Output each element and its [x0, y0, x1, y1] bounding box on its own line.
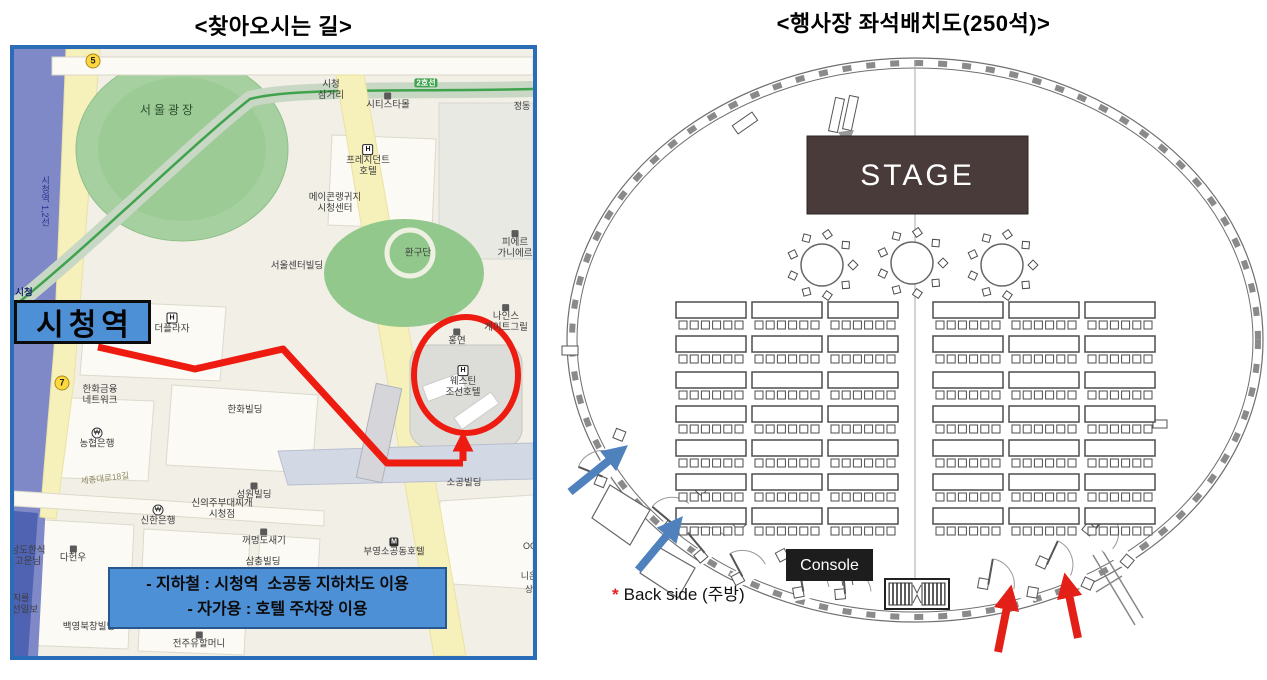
chair: [701, 355, 709, 363]
chair: [936, 355, 944, 363]
banquet-table-row: [1009, 474, 1079, 501]
chair: [947, 391, 955, 399]
chair: [724, 425, 732, 433]
chair: [766, 391, 774, 399]
wall-stub: [562, 346, 578, 355]
chair: [876, 493, 884, 501]
banquet-table-row: [828, 474, 898, 501]
info-line-car: - 자가용 : 호텔 주차장 이용: [187, 598, 367, 623]
map-exit-marker: 7: [55, 376, 70, 391]
chair: [811, 355, 819, 363]
chair: [932, 279, 940, 287]
chair: [831, 321, 839, 329]
bank-icon: ₩: [92, 428, 103, 439]
chair: [1068, 425, 1076, 433]
console-label: Console: [800, 557, 859, 574]
chair: [1099, 321, 1107, 329]
chair: [1046, 391, 1054, 399]
chair: [713, 391, 721, 399]
back-side-text: Back side (주방): [624, 585, 745, 604]
chair: [1144, 321, 1152, 329]
chair: [892, 232, 901, 241]
banquet-table-row: [1085, 336, 1155, 363]
chair: [853, 321, 861, 329]
chair: [724, 493, 732, 501]
chair: [735, 425, 743, 433]
chair: [811, 493, 819, 501]
chair: [876, 527, 884, 535]
chair: [958, 459, 966, 467]
chair: [981, 459, 989, 467]
chair: [713, 355, 721, 363]
banquet-table-row: [1085, 440, 1155, 467]
chair: [1133, 493, 1141, 501]
chair: [947, 355, 955, 363]
chair: [789, 321, 797, 329]
banquet-table-row: [828, 406, 898, 433]
chair: [800, 355, 808, 363]
chair: [913, 228, 923, 238]
chair: [1099, 425, 1107, 433]
building-icon: [453, 329, 460, 336]
chair: [947, 527, 955, 535]
chair: [1023, 391, 1031, 399]
banquet-table-row: [933, 372, 1003, 399]
chair: [936, 391, 944, 399]
chair: [755, 527, 763, 535]
banquet-table-row: [828, 440, 898, 467]
chair: [811, 459, 819, 467]
banquet-table-row: [752, 406, 822, 433]
building-icon: [69, 546, 76, 553]
chair: [842, 241, 850, 249]
chair: [865, 493, 873, 501]
chair: [1122, 321, 1130, 329]
chair: [777, 527, 785, 535]
chair: [981, 355, 989, 363]
chair: [1057, 527, 1065, 535]
round-table: [788, 230, 858, 301]
banquet-table-row: [1085, 508, 1155, 535]
banquet-table-row: [933, 474, 1003, 501]
chair: [735, 355, 743, 363]
chair: [1034, 527, 1042, 535]
chair: [1144, 493, 1152, 501]
chair: [992, 391, 1000, 399]
chair: [777, 459, 785, 467]
chair: [876, 425, 884, 433]
chair: [992, 425, 1000, 433]
chair: [936, 321, 944, 329]
directions-map-panel: 서울광장시청 삼거리시티스타몰2호선정동H프레지던트 호텔메이콘랭귀지 시청센터…: [10, 45, 537, 660]
chair: [777, 391, 785, 399]
chair: [777, 355, 785, 363]
banquet-table-row: [828, 302, 898, 329]
chair: [1012, 459, 1020, 467]
chair: [777, 425, 785, 433]
chair: [823, 230, 833, 240]
map-label: 성원빌딩: [237, 483, 272, 502]
banquet-table-row: [1009, 302, 1079, 329]
banquet-table-row: [828, 336, 898, 363]
chair: [981, 425, 989, 433]
chair: [1133, 391, 1141, 399]
chair: [811, 321, 819, 329]
chair: [766, 321, 774, 329]
chair: [1012, 493, 1020, 501]
chair: [878, 248, 887, 257]
chair: [842, 321, 850, 329]
chair: [755, 493, 763, 501]
banquet-table-row: [933, 302, 1003, 329]
chair: [992, 527, 1000, 535]
building-icon: [195, 632, 202, 639]
chair: [811, 527, 819, 535]
banquet-table-row: [1085, 372, 1155, 399]
chair: [887, 425, 895, 433]
round-table: [968, 230, 1038, 301]
map-title: <찾아오시는 길>: [10, 9, 537, 41]
map-label: 신의주부대찌개 시청점: [191, 499, 252, 521]
chair: [947, 459, 955, 467]
chair: [1110, 321, 1118, 329]
chair: [1023, 493, 1031, 501]
chair: [932, 239, 940, 247]
banquet-table-row: [1085, 406, 1155, 433]
chair: [970, 321, 978, 329]
chair: [936, 425, 944, 433]
chair: [1133, 425, 1141, 433]
desk-unit: [922, 583, 945, 605]
chair: [842, 281, 850, 289]
chair: [1046, 459, 1054, 467]
chair: [853, 459, 861, 467]
chair: [831, 459, 839, 467]
chair: [679, 459, 687, 467]
chair: [876, 321, 884, 329]
banquet-table-row: [1009, 372, 1079, 399]
hotel-icon: H: [458, 365, 469, 376]
chair: [992, 459, 1000, 467]
city-hall-station-label: 시청역: [14, 300, 151, 344]
chair: [811, 425, 819, 433]
chair: [853, 493, 861, 501]
info-line-subway: - 지하철 : 시청역 소공동 지하차도 이용: [146, 573, 409, 598]
back-side-label: *Back side (주방): [612, 580, 745, 605]
chair: [1034, 459, 1042, 467]
chair: [1133, 321, 1141, 329]
chair: [1088, 355, 1096, 363]
chair: [724, 355, 732, 363]
map-label: 피에르 가니에르: [498, 230, 533, 260]
chair: [735, 459, 743, 467]
chair: [789, 391, 797, 399]
chair: [981, 493, 989, 501]
chair: [1046, 425, 1054, 433]
banquet-table-row: [933, 336, 1003, 363]
map-label: 서울센터빌딩: [271, 262, 323, 273]
chair: [1023, 355, 1031, 363]
chair: [811, 391, 819, 399]
map-exit-marker: 5: [86, 54, 101, 69]
chair: [1068, 355, 1076, 363]
banquet-table-row: [676, 406, 746, 433]
map-label: 시청 삼거리: [318, 80, 344, 102]
chair: [1088, 493, 1096, 501]
banquet-table-row: [1009, 406, 1079, 433]
chair: [853, 527, 861, 535]
chair: [831, 425, 839, 433]
building-icon: [502, 304, 509, 311]
banquet-table-row: [828, 372, 898, 399]
map-label: 정동: [514, 101, 531, 111]
map-label: 선일보: [12, 606, 38, 617]
chair: [690, 355, 698, 363]
banquet-table-row: [933, 406, 1003, 433]
map-label: H더플라자: [155, 313, 190, 336]
vestibule-room: [592, 485, 650, 545]
map-label: 니은: [521, 571, 537, 581]
map-label: 나인스 게이트그릴: [484, 304, 528, 334]
chair: [800, 425, 808, 433]
chair: [713, 321, 721, 329]
chair: [887, 459, 895, 467]
chair: [1022, 241, 1030, 249]
chair: [713, 425, 721, 433]
banquet-table-row: [1085, 302, 1155, 329]
chair: [755, 391, 763, 399]
chair: [713, 493, 721, 501]
chair: [865, 321, 873, 329]
map-label: H프레지던트 호텔: [346, 144, 390, 178]
chair: [865, 527, 873, 535]
banquet-table-row: [933, 508, 1003, 535]
map-label: 홍연: [448, 329, 465, 348]
chair: [1003, 291, 1013, 301]
chair: [1110, 391, 1118, 399]
chair: [789, 425, 797, 433]
chair: [724, 321, 732, 329]
chair: [1034, 493, 1042, 501]
chair: [1023, 527, 1031, 535]
chair: [853, 391, 861, 399]
chair: [1144, 459, 1152, 467]
chair: [958, 425, 966, 433]
banquet-table-row: [752, 474, 822, 501]
chair: [701, 321, 709, 329]
chair: [853, 425, 861, 433]
chair: [766, 425, 774, 433]
chair: [735, 493, 743, 501]
map-label: 남도한식 고운님: [11, 546, 46, 568]
chair: [690, 527, 698, 535]
map-label: 2호선: [414, 78, 437, 87]
chair: [1023, 321, 1031, 329]
chair: [1068, 493, 1076, 501]
chair: [1068, 527, 1076, 535]
chair: [679, 493, 687, 501]
chair: [1057, 425, 1065, 433]
chair: [842, 425, 850, 433]
chair: [958, 321, 966, 329]
chair: [1122, 493, 1130, 501]
chair: [690, 459, 698, 467]
map-label: 시청역 1,2선: [40, 175, 50, 226]
map-label: ₩신한은행: [141, 505, 176, 528]
seating-chart-title: <행사장 좌석배치도(250석)>: [560, 6, 1267, 38]
banquet-table-row: [1085, 474, 1155, 501]
chair: [1012, 355, 1020, 363]
chair: [936, 493, 944, 501]
banquet-table-row: [676, 440, 746, 467]
chair: [1088, 321, 1096, 329]
chair: [1099, 459, 1107, 467]
map-label: M부영소공동호텔: [363, 538, 424, 559]
map-label: H웨스틴 조선호텔: [446, 365, 481, 399]
map-label: 환구단: [405, 249, 431, 260]
chair: [887, 527, 895, 535]
chair: [724, 391, 732, 399]
banquet-table-row: [752, 508, 822, 535]
chair: [936, 527, 944, 535]
building-icon: [384, 93, 391, 100]
chair: [865, 355, 873, 363]
chair: [713, 527, 721, 535]
chair: [1022, 281, 1030, 289]
chair: [892, 286, 901, 295]
chair: [800, 391, 808, 399]
banquet-table-row: [752, 336, 822, 363]
chair: [679, 321, 687, 329]
chair: [1133, 459, 1141, 467]
map-label: 한화금융 네트워크: [83, 385, 118, 407]
round-table: [878, 228, 948, 299]
chair: [936, 459, 944, 467]
chair: [831, 493, 839, 501]
map-label: 메이콘랭귀지 시청센터: [309, 193, 361, 215]
chair: [701, 493, 709, 501]
chair: [887, 355, 895, 363]
wall-stub: [732, 112, 757, 134]
chair: [842, 493, 850, 501]
chair: [777, 493, 785, 501]
chair: [865, 459, 873, 467]
chair: [887, 391, 895, 399]
chair: [831, 391, 839, 399]
hotel-icon: H: [167, 313, 178, 324]
chair: [842, 391, 850, 399]
chair: [724, 527, 732, 535]
chair: [865, 425, 873, 433]
chair: [766, 493, 774, 501]
chair: [876, 355, 884, 363]
chair: [789, 355, 797, 363]
chair: [1110, 493, 1118, 501]
chair: [766, 459, 774, 467]
chair: [766, 527, 774, 535]
chair: [1144, 355, 1152, 363]
chair: [981, 321, 989, 329]
chair: [1110, 527, 1118, 535]
chair: [876, 459, 884, 467]
metro-icon: M: [390, 538, 399, 547]
banquet-table-row: [1009, 336, 1079, 363]
banquet-table-row: [1009, 440, 1079, 467]
chair: [679, 391, 687, 399]
chair: [913, 289, 923, 299]
chair: [1046, 493, 1054, 501]
chair: [970, 527, 978, 535]
chair: [1046, 527, 1054, 535]
chair: [992, 493, 1000, 501]
chair: [735, 321, 743, 329]
chair: [887, 493, 895, 501]
chair: [1122, 355, 1130, 363]
chair: [713, 459, 721, 467]
chair: [887, 321, 895, 329]
chair: [1122, 391, 1130, 399]
entrance-arrow-red: [998, 592, 1010, 652]
chair: [800, 493, 808, 501]
chair: [823, 291, 833, 301]
chair: [1057, 459, 1065, 467]
hotel-icon: H: [362, 144, 373, 155]
chair: [1028, 260, 1038, 270]
chair: [755, 459, 763, 467]
banquet-table-row: [676, 336, 746, 363]
chair: [938, 258, 948, 268]
chair: [789, 493, 797, 501]
map-label: 꺼멍도새기: [242, 529, 286, 548]
chair: [679, 425, 687, 433]
map-label: 다헌우: [60, 546, 86, 565]
chair: [800, 321, 808, 329]
banquet-table-row: [752, 372, 822, 399]
chair: [876, 391, 884, 399]
banquet-table-row: [676, 508, 746, 535]
chair: [1144, 391, 1152, 399]
chair: [690, 321, 698, 329]
chair: [842, 527, 850, 535]
chair: [1133, 527, 1141, 535]
map-label: 상가: [525, 585, 537, 595]
chair: [1099, 391, 1107, 399]
chair: [802, 234, 811, 243]
chair: [724, 459, 732, 467]
chair: [968, 271, 977, 280]
stage-label: STAGE: [860, 159, 974, 192]
chair: [981, 391, 989, 399]
chair: [970, 391, 978, 399]
chair: [1012, 321, 1020, 329]
banquet-table-row: [752, 302, 822, 329]
chair: [1099, 355, 1107, 363]
chair: [1122, 425, 1130, 433]
banquet-table-row: [1009, 508, 1079, 535]
map-label: 소공빌딩: [447, 479, 482, 490]
chair: [1068, 459, 1076, 467]
chair: [958, 493, 966, 501]
desk-unit: [889, 583, 912, 605]
chair: [690, 391, 698, 399]
chair: [958, 355, 966, 363]
chair: [735, 527, 743, 535]
chair: [1122, 459, 1130, 467]
chair: [789, 459, 797, 467]
chair: [831, 355, 839, 363]
bank-icon: ₩: [153, 505, 164, 516]
chair: [800, 459, 808, 467]
